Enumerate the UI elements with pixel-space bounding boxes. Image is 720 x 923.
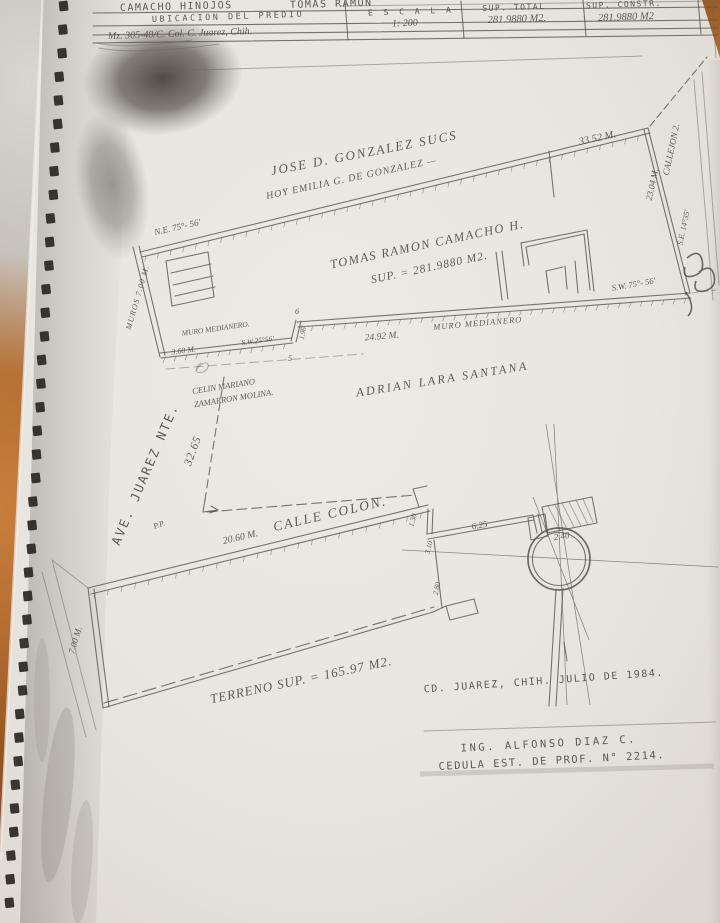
binder-hole [37, 355, 47, 366]
binder-hole [45, 213, 55, 224]
binder-hole [36, 378, 46, 389]
binder-hole [35, 402, 45, 413]
binder-hole [53, 95, 63, 106]
binder-hole [54, 71, 64, 82]
binder-hole [4, 897, 14, 908]
binder-hole [13, 756, 23, 767]
binder-hole [50, 142, 60, 153]
binder-hole [19, 638, 29, 649]
binder-hole [15, 709, 25, 720]
binder-hole [9, 827, 19, 838]
binder-hole [10, 803, 20, 814]
binder-hole [26, 543, 36, 554]
binder-hole [44, 260, 54, 271]
binder-hole [32, 449, 42, 460]
binder-hole [59, 1, 69, 12]
binder-hole [49, 166, 59, 177]
binder-hole [40, 307, 50, 318]
binder-hole [53, 119, 63, 130]
lot-number: 5 [288, 354, 292, 363]
binder-hole [57, 48, 67, 59]
sup-constr-value: 281.9880 M2 [598, 11, 655, 24]
binder-hole [27, 520, 37, 531]
binder-hole [10, 779, 20, 790]
binder-hole [32, 425, 42, 436]
binder-hole [6, 850, 16, 861]
sup-total-value: 281.9880 M2. [487, 13, 546, 26]
scale-value: 1: 200 [392, 18, 418, 30]
binder-hole [58, 24, 68, 35]
binder-hole [41, 284, 51, 295]
binder-hole [24, 567, 34, 578]
binder-hole [23, 591, 33, 602]
binder-hole [48, 189, 58, 200]
binder-hole [18, 661, 28, 672]
binder-hole [14, 732, 24, 743]
binder-hole [28, 496, 38, 507]
photo-of-survey-plan: CAMACHO HINOJOS TOMAS RAMON UBICACION DE… [0, 0, 720, 923]
binder-hole [40, 331, 50, 342]
binder-hole [45, 237, 55, 248]
binder-hole [31, 473, 41, 484]
binder-hole [22, 614, 32, 625]
jog-number: 6 [295, 307, 299, 316]
binder-hole [5, 874, 15, 885]
binder-hole [18, 685, 28, 696]
